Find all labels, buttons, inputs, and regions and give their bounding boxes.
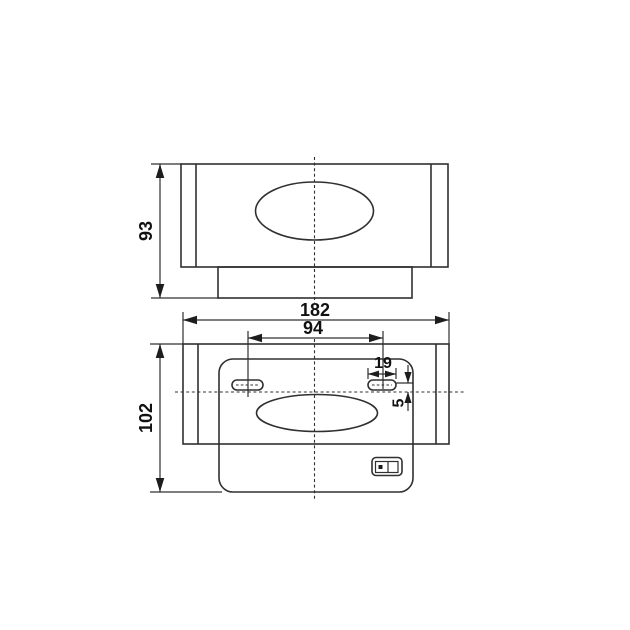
dim-94-arrow-right-icon — [369, 334, 383, 342]
dim-93-label: 93 — [136, 221, 156, 241]
dimension-back-height: 102 — [136, 344, 222, 492]
dim-94-arrow-left-icon — [248, 334, 262, 342]
dim-182-arrow-right-icon — [435, 316, 449, 324]
power-switch — [372, 458, 402, 476]
dimension-front-height: 93 — [136, 164, 219, 298]
front-view — [181, 157, 448, 303]
dim-93-arrow-up-icon — [156, 164, 165, 178]
dim-182-label: 182 — [300, 300, 330, 320]
dim-182-arrow-left-icon — [183, 316, 197, 324]
dim-19-label: 19 — [374, 355, 392, 372]
technical-drawing: 93 — [0, 0, 630, 630]
dimension-slot-spacing: 94 — [248, 318, 383, 397]
dim-94-label: 94 — [303, 318, 323, 338]
dim-102-arrow-down-icon — [156, 478, 165, 492]
dim-93-arrow-down-icon — [156, 284, 165, 298]
bottom-oval-opening — [257, 395, 378, 432]
dim-102-arrow-up-icon — [156, 344, 165, 358]
drawing-canvas: 93 — [0, 0, 630, 630]
dim-5-arrow-down-icon — [404, 372, 411, 383]
dimension-slot-offset: 5 — [391, 365, 414, 411]
dim-5-label: 5 — [391, 398, 408, 407]
switch-indicator-dot-icon — [379, 465, 383, 469]
dim-102-label: 102 — [136, 403, 156, 433]
bottom-view — [175, 339, 465, 499]
